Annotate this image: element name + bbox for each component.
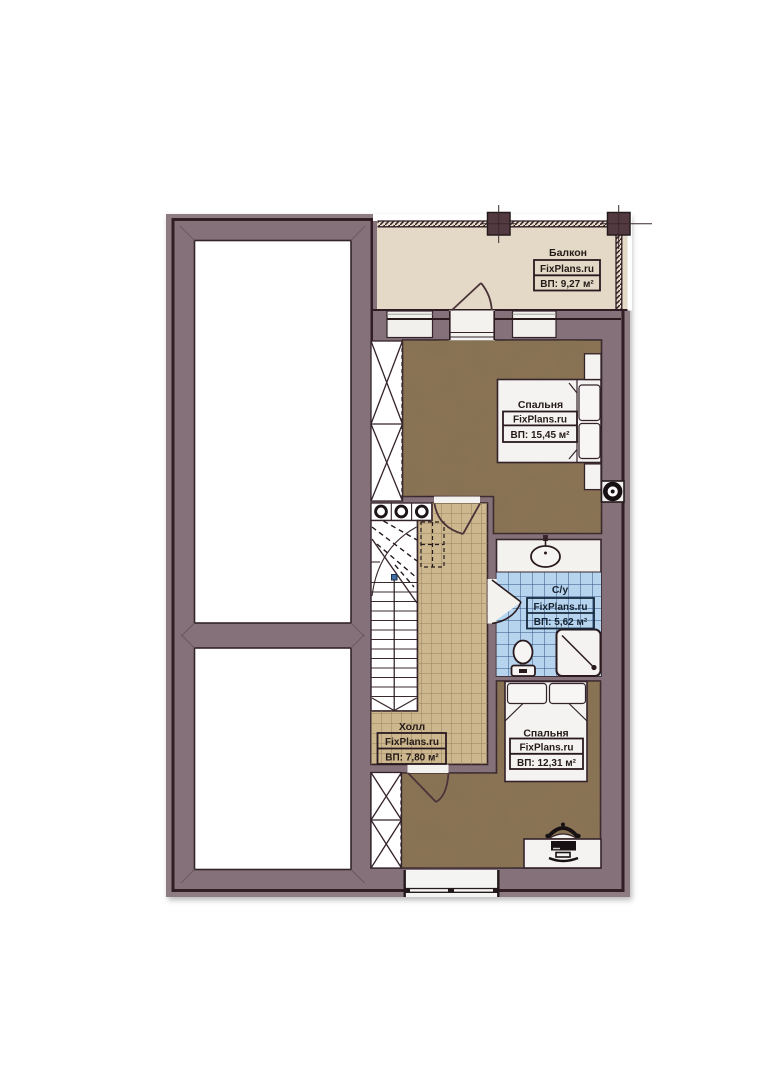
svg-text:FixPlans.ru: FixPlans.ru <box>513 415 567 426</box>
svg-text:Холл: Холл <box>399 721 425 733</box>
svg-text:Балкон: Балкон <box>549 247 587 259</box>
svg-text:FixPlans.ru: FixPlans.ru <box>540 264 594 275</box>
svg-text:ВП: 9,27 м²: ВП: 9,27 м² <box>540 279 594 290</box>
svg-text:FixPlans.ru: FixPlans.ru <box>520 743 574 754</box>
svg-text:ВП: 7,80 м²: ВП: 7,80 м² <box>385 753 439 764</box>
svg-text:ВП: 12,31 м²: ВП: 12,31 м² <box>517 758 577 769</box>
svg-text:С/у: С/у <box>552 584 569 596</box>
svg-text:FixPlans.ru: FixPlans.ru <box>534 602 588 613</box>
svg-text:FixPlans.ru: FixPlans.ru <box>385 737 439 748</box>
svg-text:ВП: 5,62 м²: ВП: 5,62 м² <box>534 617 588 628</box>
svg-text:Спальня: Спальня <box>518 399 563 411</box>
svg-text:ВП: 15,45 м²: ВП: 15,45 м² <box>510 430 570 441</box>
